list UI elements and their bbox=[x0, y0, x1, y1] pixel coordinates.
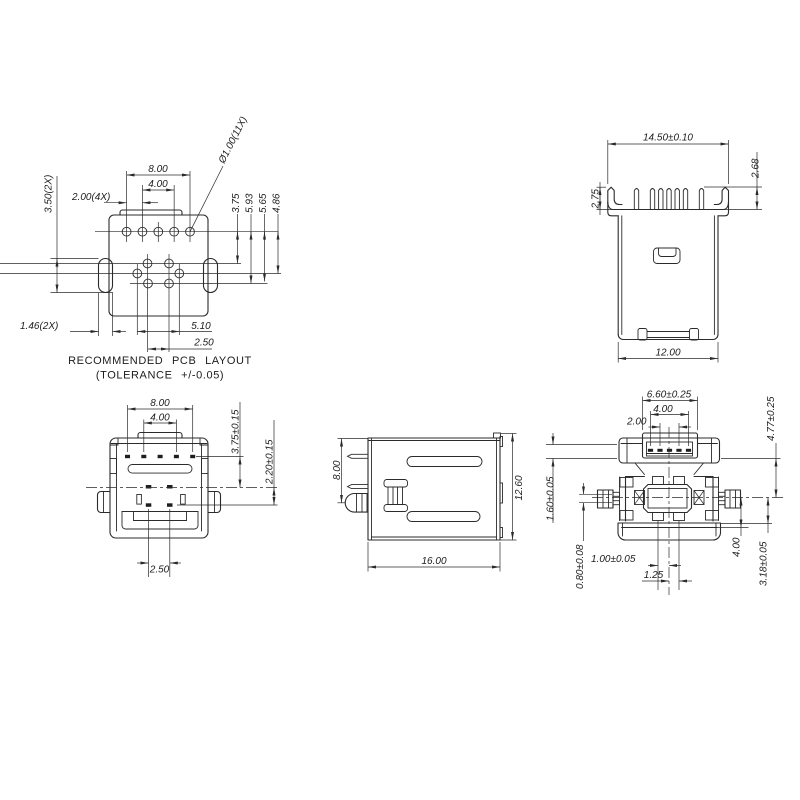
front-dim-lead-offset: 1.00±0.05 bbox=[591, 554, 636, 565]
pcb-dim-row-offset-1: 3.75 bbox=[231, 193, 242, 213]
front-dim-lead-thickness: 0.80±0.08 bbox=[575, 544, 586, 589]
front-dim-opening-offset: 4.77±0.25 bbox=[766, 396, 777, 441]
profile-dim-length: 16.00 bbox=[421, 556, 446, 567]
bottom-dim-pad-inner-span: 4.00 bbox=[150, 413, 170, 424]
pcb-dim-slot-width: 1.46(2X) bbox=[20, 321, 58, 332]
plug-dim-flange-height: 2.75 bbox=[591, 189, 602, 210]
pcb-dim-hole-span: 8.00 bbox=[148, 164, 168, 175]
pcb-dim-hole-pitch: 2.00(4X) bbox=[71, 192, 110, 203]
front-dim-block-offset: 4.00 bbox=[732, 537, 743, 557]
pcb-dim-cluster-span: 5.10 bbox=[191, 321, 211, 332]
front-dim-flange-step: 1.60±0.05 bbox=[546, 476, 557, 521]
pcb-dim-slot-length: 3.50(2X) bbox=[44, 175, 55, 213]
pcb-dim-hole-inner-span: 4.00 bbox=[148, 179, 168, 190]
bottom-dim-pad-span: 8.00 bbox=[150, 398, 170, 409]
profile-dim-post-offset: 8.00 bbox=[332, 460, 343, 480]
pcb-dim-row-offset-2: 5.93 bbox=[245, 193, 256, 213]
profile-dim-height: 12.60 bbox=[514, 475, 525, 500]
drawing-sheet: 8.00 4.00 2.00(4X) 3.75 5.93 5.65 4.86 5… bbox=[0, 0, 800, 800]
bottom-dim-lower-offset: 2.20±0.15 bbox=[265, 439, 276, 485]
bottom-dim-upper-offset: 3.75±0.15 bbox=[231, 409, 242, 454]
pcb-dim-row-offset-4: 4.86 bbox=[272, 193, 283, 213]
plug-dim-body-width: 12.00 bbox=[655, 348, 680, 359]
front-dim-contact-span: 4.00 bbox=[653, 404, 673, 415]
front-dim-opening-width: 6.60±0.25 bbox=[647, 390, 692, 401]
plug-dim-contact-height: 2.68 bbox=[751, 158, 762, 179]
front-dim-lead-pitch: 1.25 bbox=[644, 570, 664, 581]
pcb-dim-row-offset-3: 5.65 bbox=[258, 193, 269, 213]
pcb-caption-line2: (TOLERANCE +/-0.05) bbox=[96, 370, 224, 382]
bottom-dim-center-pad-span: 2.50 bbox=[149, 565, 170, 576]
engineering-drawing: 8.00 4.00 2.00(4X) 3.75 5.93 5.65 4.86 5… bbox=[0, 0, 800, 800]
pcb-caption-line1: RECOMMENDED PCB LAYOUT bbox=[68, 355, 252, 367]
plug-dim-overall-width: 14.50±0.10 bbox=[643, 133, 693, 144]
pcb-dim-cluster-inner: 2.50 bbox=[193, 338, 214, 349]
front-dim-contact-inner-span: 2.00 bbox=[626, 417, 647, 428]
front-dim-base-offset: 3.18±0.05 bbox=[759, 541, 770, 586]
